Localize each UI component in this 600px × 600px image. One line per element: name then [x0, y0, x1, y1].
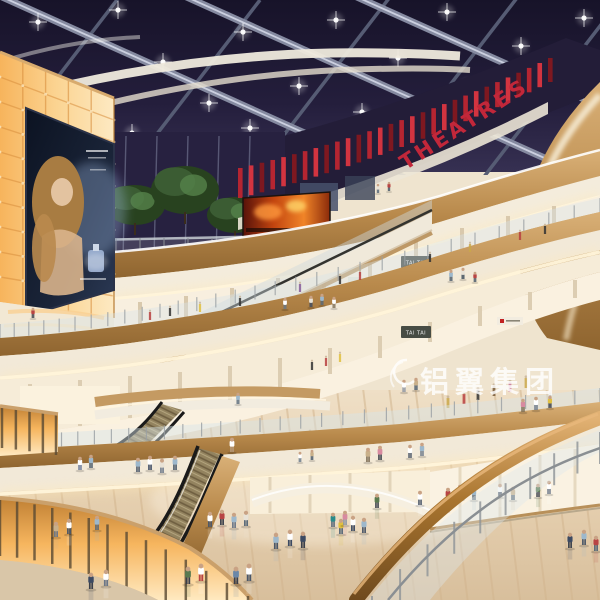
mall-atrium-rendering: THEATRES TAI TAI — [0, 0, 600, 600]
store-logo-sign — [497, 317, 523, 325]
tai-tai-sign-lower: TAI TAI — [401, 326, 431, 338]
svg-text:TAI TAI: TAI TAI — [405, 331, 426, 337]
model-face — [51, 178, 73, 206]
ground-storefronts — [250, 470, 438, 516]
distant-panel — [345, 176, 375, 200]
watermark-text: 铝翼集团 — [420, 365, 560, 399]
scene-canvas: THEATRES TAI TAI — [0, 0, 600, 600]
